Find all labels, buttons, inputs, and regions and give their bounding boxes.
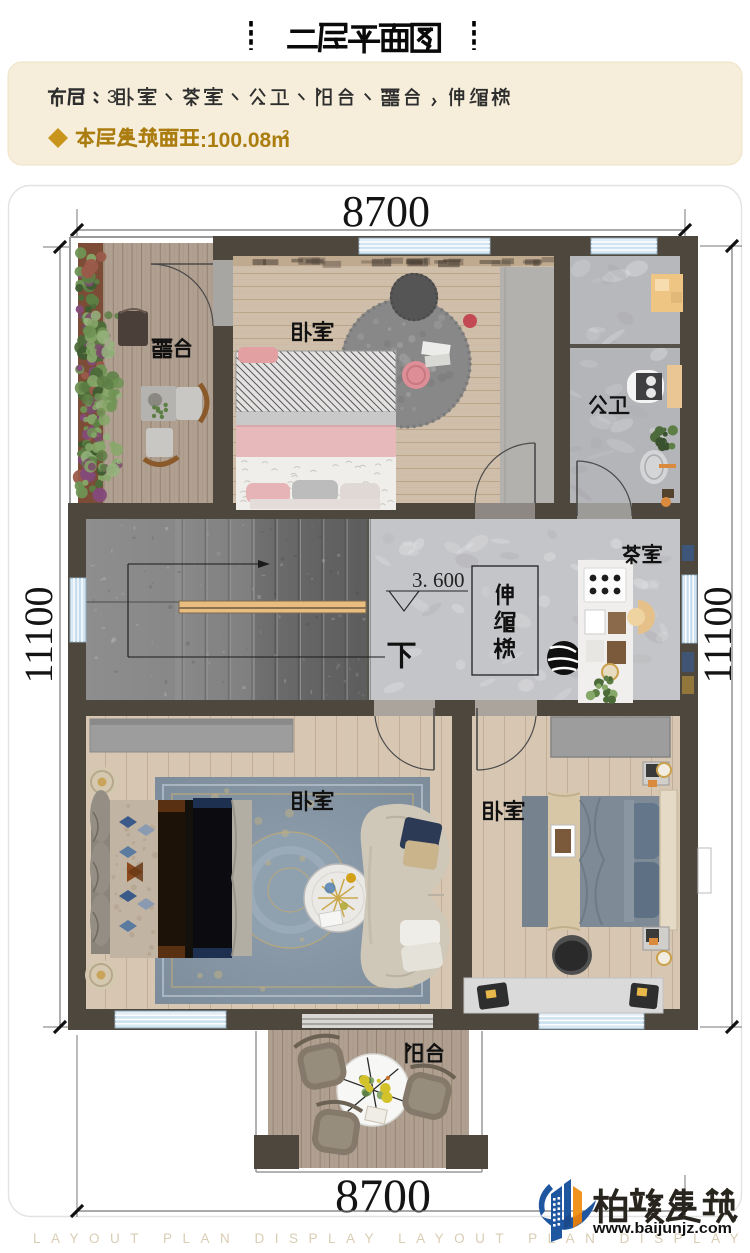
svg-text:11100: 11100 <box>695 586 740 683</box>
svg-text:8700: 8700 <box>342 187 430 236</box>
svg-text:2: 2 <box>282 127 289 142</box>
svg-text:3. 600: 3. 600 <box>412 568 465 592</box>
svg-text:3: 3 <box>107 87 117 107</box>
svg-text:11100: 11100 <box>16 586 61 683</box>
svg-text:www.baijunjz.com: www.baijunjz.com <box>592 1220 732 1237</box>
svg-text::100.08m: :100.08m <box>200 129 290 152</box>
svg-text:8700: 8700 <box>335 1170 431 1223</box>
